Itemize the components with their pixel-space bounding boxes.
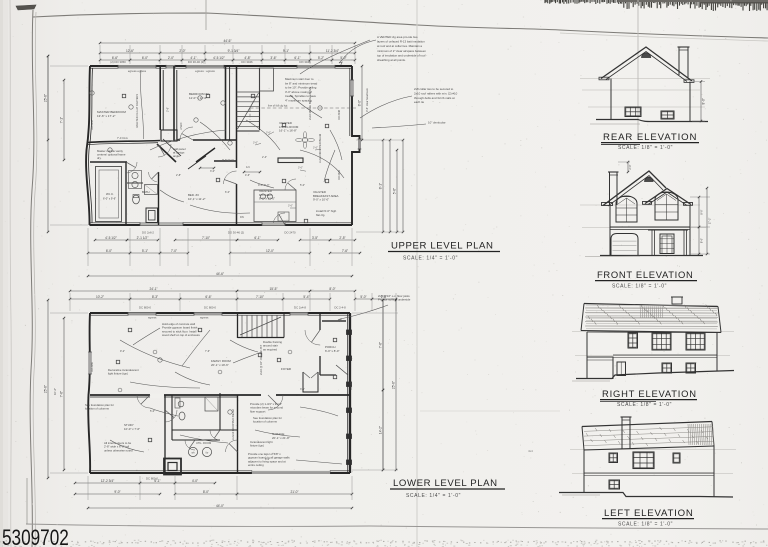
svg-text:BATH: BATH [142, 190, 150, 194]
svg-text:11'-0" x 12'-6": 11'-0" x 12'-6" [189, 96, 207, 100]
svg-text:8'-0": 8'-0" [699, 238, 703, 243]
svg-text:4'-5 1/2": 4'-5 1/2" [105, 236, 117, 240]
svg-text:REAR ELEVATION: REAR ELEVATION [603, 132, 697, 143]
svg-text:6'-0": 6'-0" [225, 191, 230, 194]
svg-text:5'-0": 5'-0" [300, 184, 305, 187]
svg-text:dry.: dry. [97, 156, 102, 160]
svg-text:7'-6": 7'-6" [205, 350, 210, 353]
svg-text:minimum of 2" clear airspace b: minimum of 2" clear airspace between [377, 49, 426, 53]
svg-text:2x10 RIDGE BEAM ABOVE: 2x10 RIDGE BEAM ABOVE [308, 86, 312, 120]
svg-text:25'-6": 25'-6" [44, 94, 48, 102]
svg-text:LOWER LEVEL PLAN: LOWER LEVEL PLAN [393, 478, 498, 489]
svg-text:2'-0": 2'-0" [628, 164, 632, 169]
svg-text:7'-6": 7'-6" [379, 342, 383, 348]
svg-text:12'-0": 12'-0" [266, 249, 274, 253]
svg-text:6'-0": 6'-0" [142, 56, 148, 60]
svg-text:5'-1": 5'-1" [142, 249, 148, 253]
svg-text:3'-0": 3'-0" [210, 170, 215, 173]
svg-text:7'-6": 7'-6" [342, 249, 348, 253]
svg-text:7'-10": 7'-10" [256, 295, 264, 299]
svg-text:20'-1" x 19'-6": 20'-1" x 19'-6" [211, 363, 229, 367]
svg-text:layers of unfaced R-13 batt in: layers of unfaced R-13 batt insulation [377, 40, 425, 44]
svg-text:10" denticular: 10" denticular [428, 121, 446, 125]
svg-text:5'-2": 5'-2" [318, 56, 324, 60]
svg-text:LINEN: LINEN [180, 122, 183, 130]
svg-text:9'-6" 5'-0": 9'-6" 5'-0" [222, 158, 234, 162]
svg-text:4'-5 1/2": 4'-5 1/2" [213, 56, 225, 60]
svg-text:DC 800-0: DC 800-0 [204, 306, 216, 310]
svg-text:LEFT ELEVATION: LEFT ELEVATION [604, 508, 694, 519]
svg-text:9'-6" x 11'-0": 9'-6" x 11'-0" [259, 197, 275, 201]
svg-text:as required: as required [263, 347, 277, 351]
svg-text:10'-1" x 11'-2": 10'-1" x 11'-2" [188, 197, 206, 201]
svg-text:44'-6": 44'-6" [223, 39, 231, 43]
svg-text:SCALE: 1/4" = 1'-0": SCALE: 1/4" = 1'-0" [403, 256, 458, 262]
svg-text:12'-2 3/4": 12'-2 3/4" [101, 479, 114, 483]
svg-text:3'-6": 3'-6" [253, 142, 258, 145]
svg-text:5'-0": 5'-0" [360, 295, 366, 299]
svg-text:DC 800-0: DC 800-0 [146, 477, 158, 481]
svg-text:24'-1": 24'-1" [149, 287, 157, 291]
svg-text:SCALE: 1/8" = 1'-0": SCALE: 1/8" = 1'-0" [612, 284, 667, 290]
svg-text:8'-0": 8'-0" [329, 287, 335, 291]
svg-text:6'-1": 6'-1" [254, 236, 260, 240]
svg-text:10'-0" x 7'-6": 10'-0" x 7'-6" [124, 427, 140, 431]
svg-text:VAULTED CLG AT RAFTERS: VAULTED CLG AT RAFTERS [135, 94, 139, 128]
svg-text:9'-0": 9'-0" [114, 490, 120, 494]
svg-text:7'-0 CLG: 7'-0 CLG [117, 136, 128, 140]
svg-text:16'-1" x 16'-8": 16'-1" x 16'-8" [279, 129, 297, 133]
svg-text:8'-0": 8'-0" [699, 209, 703, 214]
svg-text:UPPER LEVEL PLAN: UPPER LEVEL PLAN [391, 241, 494, 252]
svg-text:25'-6": 25'-6" [392, 381, 396, 389]
svg-text:DO 2x6: DO 2x6 [350, 381, 353, 390]
svg-text:13'-6" x 17'-2": 13'-6" x 17'-2" [97, 114, 115, 118]
svg-text:DO 3050: DO 3050 [91, 361, 94, 372]
svg-text:SCALE: 1/8" = 1'-0": SCALE: 1/8" = 1'-0" [617, 402, 672, 408]
svg-text:2'-1 1/2": 2'-1 1/2" [137, 236, 149, 240]
svg-text:2'-4": 2'-4" [262, 156, 267, 159]
svg-text:W.I.C.: W.I.C. [106, 192, 114, 196]
svg-text:DO 2470: DO 2470 [284, 231, 296, 235]
svg-text:20'-1" x 21'-8": 20'-1" x 21'-8" [272, 436, 290, 440]
svg-text:sheathing at all points.: sheathing at all points. [377, 58, 406, 62]
svg-text:Provide soffit at underside: Provide soffit at underside [378, 298, 411, 302]
svg-text:2x8 collar ties to be secured: 2x8 collar ties to be secured to [414, 87, 454, 91]
svg-text:2x10 @ 16" OC FLR JST: 2x10 @ 16" OC FLR JST [259, 345, 263, 375]
svg-text:8'-0": 8'-0" [265, 458, 270, 461]
svg-text:DC 2-4-8: DC 2-4-8 [334, 306, 346, 310]
svg-text:14'-2": 14'-2" [379, 426, 383, 434]
svg-text:through-bolts and 3d rib nails: through-bolts and 3d rib nails at [414, 96, 455, 100]
svg-text:6'-0": 6'-0" [106, 249, 112, 253]
svg-text:5'-6": 5'-6" [393, 188, 397, 194]
svg-text:DO 3046: DO 3046 [241, 60, 253, 64]
svg-text:egress egress: egress egress [128, 69, 147, 73]
svg-text:8'-0": 8'-0" [702, 98, 706, 104]
svg-text:7'-0": 7'-0" [171, 249, 177, 253]
svg-text:4'-1": 4'-1" [190, 56, 196, 60]
svg-text:light fixture (typ): light fixture (typ) [108, 372, 128, 376]
svg-text:A VENTED clg area pro-ide two: A VENTED clg area pro-ide two [377, 35, 418, 39]
svg-text:3'-6": 3'-6" [313, 147, 318, 150]
svg-text:unless otherwise noted: unless otherwise noted [104, 448, 133, 452]
svg-text:location of columns: location of columns [85, 407, 110, 411]
svg-text:top of insulation and undersid: top of insulation and underside of roof [377, 53, 426, 57]
svg-text:9'-0" x 10'-0": 9'-0" x 10'-0" [313, 198, 329, 202]
svg-text:44'-6": 44'-6" [216, 272, 224, 276]
svg-text:8'-3": 8'-3" [152, 295, 158, 299]
svg-text:6'-0" x 8'-0": 6'-0" x 8'-0" [325, 349, 340, 353]
svg-text:SCALE: 1/8" = 1'-0": SCALE: 1/8" = 1'-0" [618, 522, 673, 528]
svg-text:4'-6": 4'-6" [245, 174, 250, 177]
svg-text:DO 3046: DO 3046 [338, 109, 341, 120]
svg-text:3'-6" clear headroom: 3'-6" clear headroom [365, 88, 369, 112]
svg-text:2'-8": 2'-8" [176, 174, 181, 177]
svg-text:DO 3050: DO 3050 [91, 119, 94, 130]
svg-text:FOYER: FOYER [281, 367, 291, 371]
svg-text:8'-1": 8'-1" [379, 183, 383, 189]
svg-text:2x10 roof rafters with min. (2: 2x10 roof rafters with min. (2) #10 [414, 91, 458, 95]
svg-text:15'-5": 15'-5" [269, 287, 277, 291]
svg-text:egress: egress [200, 316, 209, 320]
svg-text:angle: angle [173, 154, 180, 158]
svg-text:DO 2432: DO 2432 [338, 169, 341, 180]
svg-text:3-2x10 DROPPED BEAM: 3-2x10 DROPPED BEAM [231, 409, 235, 440]
svg-text:10'-2": 10'-2" [96, 295, 104, 299]
svg-text:44'-0": 44'-0" [216, 504, 224, 508]
svg-text:4'-8": 4'-8" [244, 56, 250, 60]
svg-text:25'-6": 25'-6" [44, 385, 48, 393]
svg-text:3'-6": 3'-6" [266, 132, 271, 135]
svg-text:(2) DO 3050: (2) DO 3050 [110, 60, 126, 64]
svg-text:5'-4": 5'-4" [303, 295, 309, 299]
svg-text:wood shelf on top of enclosure: wood shelf on top of enclosure [162, 333, 200, 337]
svg-text:each tie: each tie [414, 100, 425, 104]
svg-text:3'-5": 3'-5" [312, 236, 318, 240]
svg-text:10'-6": 10'-6" [53, 388, 57, 395]
svg-text:7'-10": 7'-10" [202, 236, 210, 240]
svg-text:2'-6": 2'-6" [166, 107, 170, 112]
svg-text:11'-2 3/4": 11'-2 3/4" [326, 49, 339, 53]
svg-text:DO 30-46 (2): DO 30-46 (2) [188, 60, 204, 64]
svg-text:entire ceiling: entire ceiling [248, 463, 264, 467]
svg-text:4'-0": 4'-0" [192, 479, 198, 483]
svg-text:21'-0": 21'-0" [290, 490, 298, 494]
svg-text:9'-2": 9'-2" [120, 350, 125, 353]
svg-text:3'-6": 3'-6" [270, 56, 276, 60]
svg-text:egress : egress: egress : egress [195, 69, 215, 73]
svg-text:17'-2": 17'-2" [707, 218, 711, 225]
svg-text:FRONT ELEVATION: FRONT ELEVATION [597, 269, 693, 280]
svg-text:egress: egress [148, 316, 157, 320]
svg-text:line of full clg hgt: line of full clg hgt [268, 103, 288, 107]
svg-text:2'-5": 2'-5" [339, 236, 345, 240]
svg-text:7'-6": 7'-6" [60, 391, 64, 397]
svg-text:DC 800-0: DC 800-0 [139, 306, 151, 310]
svg-text:1/4: 1/4 [246, 165, 250, 169]
svg-text:SCALE: 1/4" = 1'-0": SCALE: 1/4" = 1'-0" [406, 493, 461, 499]
svg-text:6'-1": 6'-1" [294, 56, 300, 60]
svg-text:3-2x8 DROPPED BEAM: 3-2x8 DROPPED BEAM [318, 133, 322, 163]
svg-text:DN: DN [240, 215, 244, 219]
svg-text:8'-0": 8'-0" [203, 490, 209, 494]
svg-text:flyer support: flyer support [250, 409, 266, 413]
svg-text:3'-6": 3'-6" [298, 167, 303, 170]
svg-text:fur: fur [206, 451, 209, 454]
svg-text:6'-0" x 9'-6": 6'-0" x 9'-6" [103, 197, 116, 201]
svg-text:DO 2x6-2: DO 2x6-2 [142, 231, 154, 235]
svg-text:fixture (typ): fixture (typ) [250, 444, 264, 448]
svg-text:5'-0": 5'-0" [150, 410, 155, 413]
svg-text:7'-1": 7'-1" [60, 117, 64, 123]
svg-text:DO 30-46 (2): DO 30-46 (2) [228, 231, 244, 235]
svg-text:2'-0": 2'-0" [179, 49, 185, 53]
svg-text:UTIL. ROOM: UTIL. ROOM [196, 441, 211, 445]
svg-text:3'-6": 3'-6" [300, 388, 305, 391]
svg-text:RIGHT ELEVATION: RIGHT ELEVATION [602, 388, 697, 399]
svg-text:DC 2x4-8: DC 2x4-8 [294, 306, 306, 310]
svg-text:DO 3046: DO 3046 [299, 60, 311, 64]
svg-text:6'-6": 6'-6" [205, 295, 211, 299]
svg-text:8'-0": 8'-0" [358, 100, 362, 106]
svg-text:6'-6": 6'-6" [112, 56, 118, 60]
svg-text:4x4: 4x4 [528, 449, 533, 453]
svg-text:flat clg.: flat clg. [316, 213, 325, 217]
svg-text:at roof and at collar ties. Ma: at roof and at collar ties. Maintain a [377, 44, 422, 48]
svg-text:9'-1": 9'-1" [283, 49, 289, 53]
svg-text:5309702: 5309702 [2, 526, 69, 547]
svg-text:3'-6": 3'-6" [288, 205, 293, 208]
svg-text:location of columns: location of columns [253, 420, 278, 424]
svg-text:SCALE: 1/8" = 1'-0": SCALE: 1/8" = 1'-0" [618, 145, 673, 151]
svg-text:9'-1 3/4": 9'-1 3/4" [228, 49, 240, 53]
svg-text:2'-0": 2'-0" [168, 56, 174, 60]
